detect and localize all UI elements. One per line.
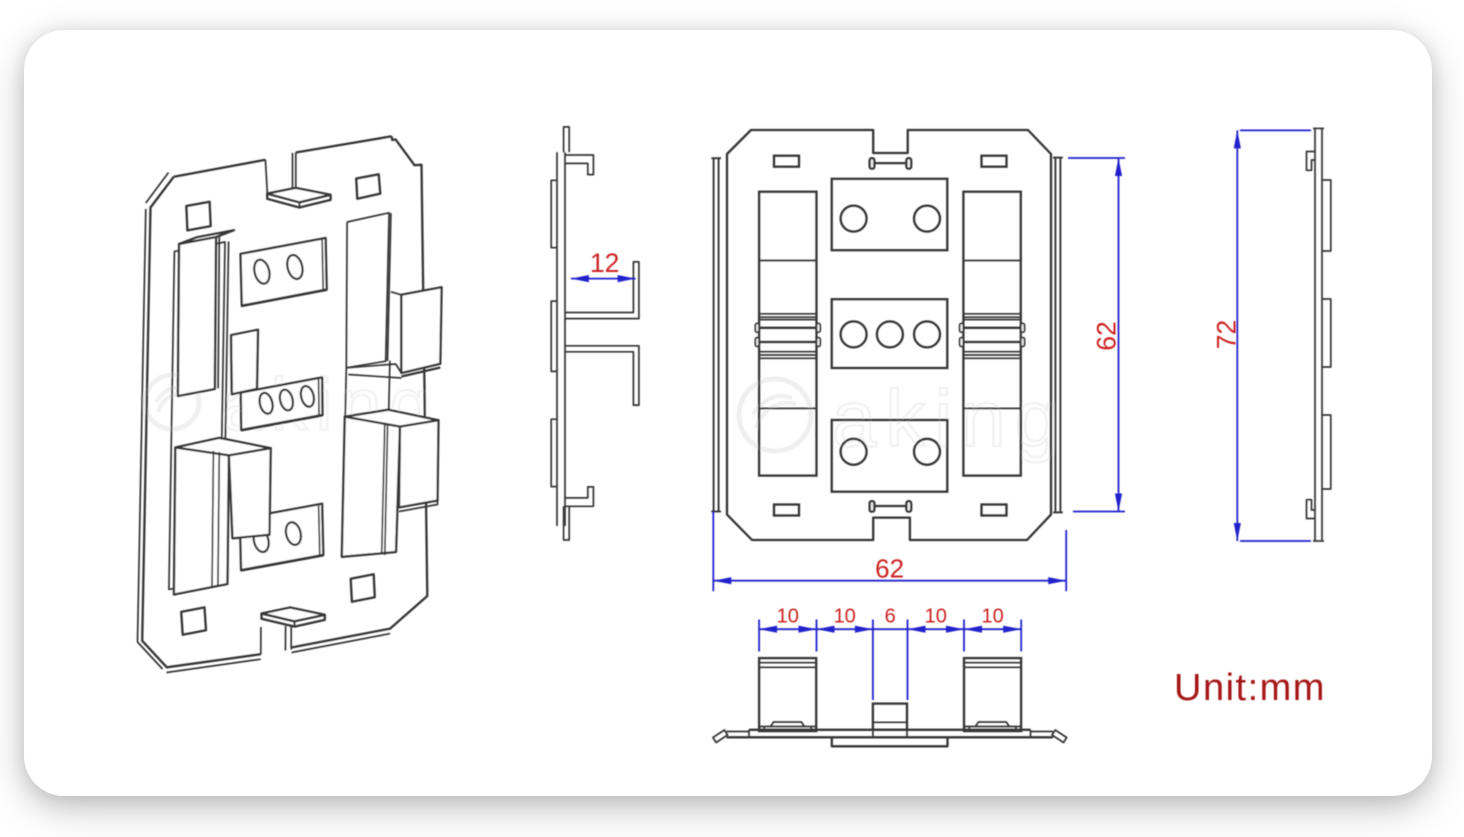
svg-text:10: 10 xyxy=(981,606,1003,628)
svg-text:12: 12 xyxy=(590,248,619,278)
svg-text:Unit:mm: Unit:mm xyxy=(1174,667,1326,709)
svg-text:72: 72 xyxy=(1212,320,1242,349)
svg-text:62: 62 xyxy=(875,554,904,584)
svg-text:10: 10 xyxy=(834,606,856,628)
svg-text:10: 10 xyxy=(925,606,947,628)
svg-text:10: 10 xyxy=(777,606,799,628)
svg-text:6: 6 xyxy=(885,606,896,628)
svg-text:62: 62 xyxy=(1092,321,1122,350)
